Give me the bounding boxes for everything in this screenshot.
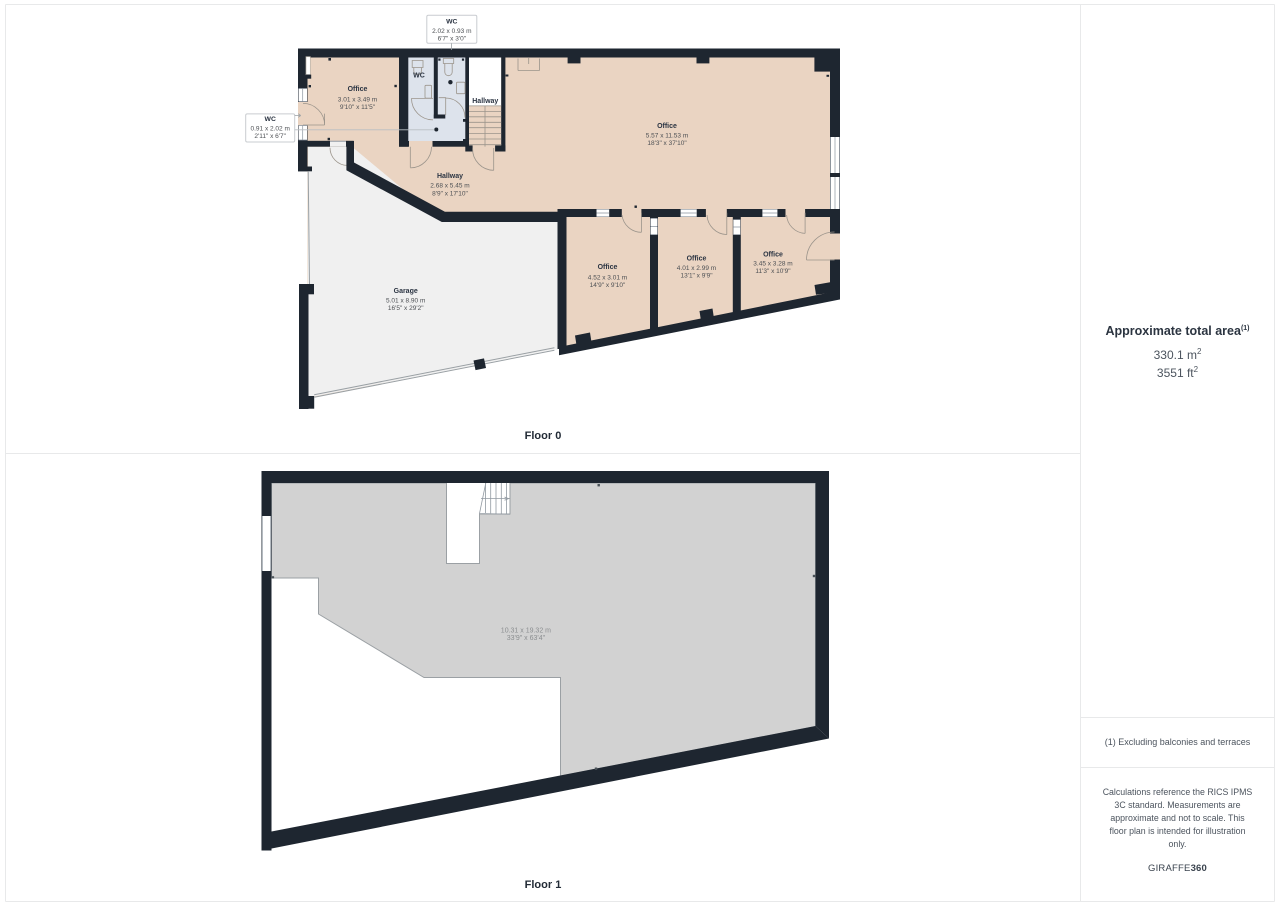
svg-text:4.01 x 2.99 m: 4.01 x 2.99 m bbox=[677, 265, 716, 272]
svg-text:2.68 x 5.45 m: 2.68 x 5.45 m bbox=[430, 183, 469, 190]
svg-text:11'3" x 10'9": 11'3" x 10'9" bbox=[755, 268, 791, 275]
svg-text:WC: WC bbox=[265, 116, 276, 123]
svg-text:Floor 1: Floor 1 bbox=[525, 879, 562, 891]
svg-text:Office: Office bbox=[657, 123, 677, 130]
svg-text:WC: WC bbox=[413, 73, 425, 80]
svg-text:16'5" x 29'2": 16'5" x 29'2" bbox=[388, 305, 424, 312]
svg-text:3.45 x 3.28 m: 3.45 x 3.28 m bbox=[753, 260, 792, 267]
svg-text:2'11" x 6'7": 2'11" x 6'7" bbox=[254, 133, 286, 140]
svg-text:13'1" x 9'9": 13'1" x 9'9" bbox=[680, 273, 713, 280]
svg-text:18'3" x 37'10": 18'3" x 37'10" bbox=[647, 140, 687, 147]
svg-text:9'10" x 11'5": 9'10" x 11'5" bbox=[340, 104, 376, 111]
svg-text:Office: Office bbox=[687, 256, 707, 263]
svg-text:0.91 x 2.02 m: 0.91 x 2.02 m bbox=[251, 126, 290, 133]
svg-text:Floor 0: Floor 0 bbox=[525, 430, 562, 442]
svg-text:4.52 x 3.01 m: 4.52 x 3.01 m bbox=[588, 275, 627, 282]
svg-text:WC: WC bbox=[446, 19, 457, 26]
svg-text:2.02 x 0.93 m: 2.02 x 0.93 m bbox=[432, 28, 471, 35]
svg-text:Office: Office bbox=[348, 86, 368, 93]
svg-text:5.01 x 8.90 m: 5.01 x 8.90 m bbox=[386, 298, 425, 305]
svg-text:3.01 x 3.49 m: 3.01 x 3.49 m bbox=[338, 97, 377, 104]
svg-text:Office: Office bbox=[598, 264, 618, 271]
svg-text:8'9" x 17'10": 8'9" x 17'10" bbox=[432, 190, 468, 197]
svg-text:Hallway: Hallway bbox=[472, 98, 498, 105]
svg-text:Garage: Garage bbox=[394, 288, 418, 295]
svg-text:Hallway: Hallway bbox=[437, 173, 463, 180]
svg-text:10.31 x 19.32 m: 10.31 x 19.32 m bbox=[501, 627, 551, 634]
svg-text:33'9" x 63'4": 33'9" x 63'4" bbox=[507, 635, 546, 642]
svg-text:Office: Office bbox=[763, 252, 783, 259]
svg-text:14'9" x 9'10": 14'9" x 9'10" bbox=[590, 282, 626, 289]
svg-text:5.57 x 11.53 m: 5.57 x 11.53 m bbox=[646, 133, 689, 140]
svg-text:6'7" x 3'0": 6'7" x 3'0" bbox=[438, 35, 467, 42]
